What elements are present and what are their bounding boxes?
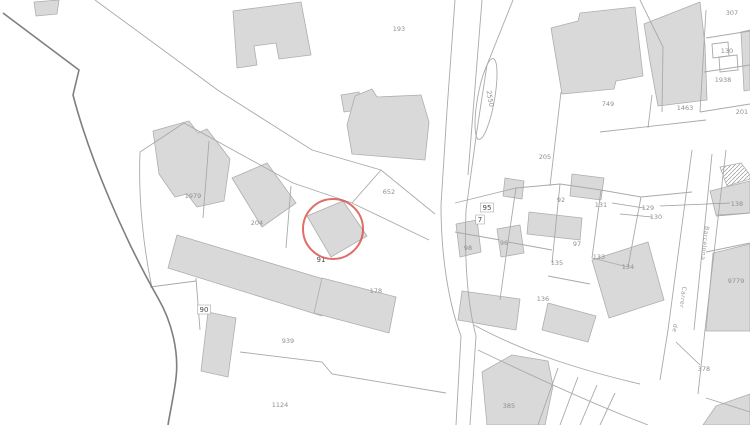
parcel-number-label: 205 bbox=[539, 153, 551, 161]
parcel-number-label: 98 bbox=[464, 244, 472, 252]
street-name-label: de bbox=[670, 324, 678, 333]
parcel-number-label: 204 bbox=[251, 219, 263, 227]
cadastral-map-view: 1936521979204911789093911249579896921312… bbox=[0, 0, 750, 425]
parcel-number-label: 193 bbox=[393, 25, 405, 33]
parcel-number-label: 2550 bbox=[485, 90, 496, 108]
building bbox=[710, 181, 750, 215]
parcel-number-label: 138 bbox=[731, 200, 743, 208]
building bbox=[168, 235, 330, 316]
building bbox=[347, 89, 429, 160]
parcel-number-label: 136 bbox=[537, 295, 549, 303]
parcel-number-label: 92 bbox=[557, 196, 565, 204]
building bbox=[232, 163, 296, 227]
building bbox=[551, 7, 643, 94]
municipal-boundary-line bbox=[3, 13, 177, 425]
parcel-number-label: 1124 bbox=[272, 401, 289, 409]
parcel-number-label: 97 bbox=[573, 240, 581, 248]
parcel-number-label: 133 bbox=[593, 253, 605, 261]
parcel-number-label: 201 bbox=[736, 108, 748, 116]
parcel-number-label: 90 bbox=[200, 306, 209, 314]
building bbox=[706, 244, 750, 331]
parcel-number-label: 749 bbox=[602, 100, 614, 108]
parcel-number-label: 178 bbox=[370, 287, 382, 295]
parcel-number-label: 939 bbox=[282, 337, 294, 345]
building bbox=[644, 2, 707, 106]
parcel-number-label: 1979 bbox=[185, 192, 202, 200]
parcel-number-label: 385 bbox=[503, 402, 515, 410]
parcel-number-label: 131 bbox=[595, 201, 607, 209]
parcel-number-label: 378 bbox=[698, 365, 710, 373]
street-name-label: Barcelona bbox=[699, 226, 710, 261]
map-canvas[interactable]: 1936521979204911789093911249579896921312… bbox=[0, 0, 750, 425]
building bbox=[233, 2, 311, 68]
parcel-number-label: 96 bbox=[500, 239, 508, 247]
building bbox=[741, 30, 750, 91]
parcel-number-label: 135 bbox=[551, 259, 563, 267]
parcel-number-label: 134 bbox=[622, 263, 634, 271]
parcel-number-label: 652 bbox=[383, 188, 395, 196]
parcel-number-label: 130 bbox=[650, 213, 662, 221]
building bbox=[34, 0, 59, 16]
parcel-number-label: 7 bbox=[478, 216, 482, 224]
building bbox=[542, 303, 596, 342]
building bbox=[201, 312, 236, 377]
building bbox=[458, 291, 520, 330]
parcel-number-label: 1938 bbox=[715, 76, 732, 84]
parcel-number-label: 130 bbox=[721, 47, 733, 55]
building bbox=[482, 355, 553, 425]
parcel-number-label: 129 bbox=[642, 204, 654, 212]
building bbox=[570, 174, 604, 200]
street-name-label: Carrer bbox=[678, 286, 688, 308]
parcel-number-label: 9779 bbox=[728, 277, 745, 285]
parcel-number-label: 95 bbox=[483, 204, 492, 212]
parcel-number-label: 1463 bbox=[677, 104, 694, 112]
highlighted-building bbox=[307, 201, 367, 257]
parcel-number-label: 307 bbox=[726, 9, 738, 17]
building bbox=[314, 278, 396, 333]
